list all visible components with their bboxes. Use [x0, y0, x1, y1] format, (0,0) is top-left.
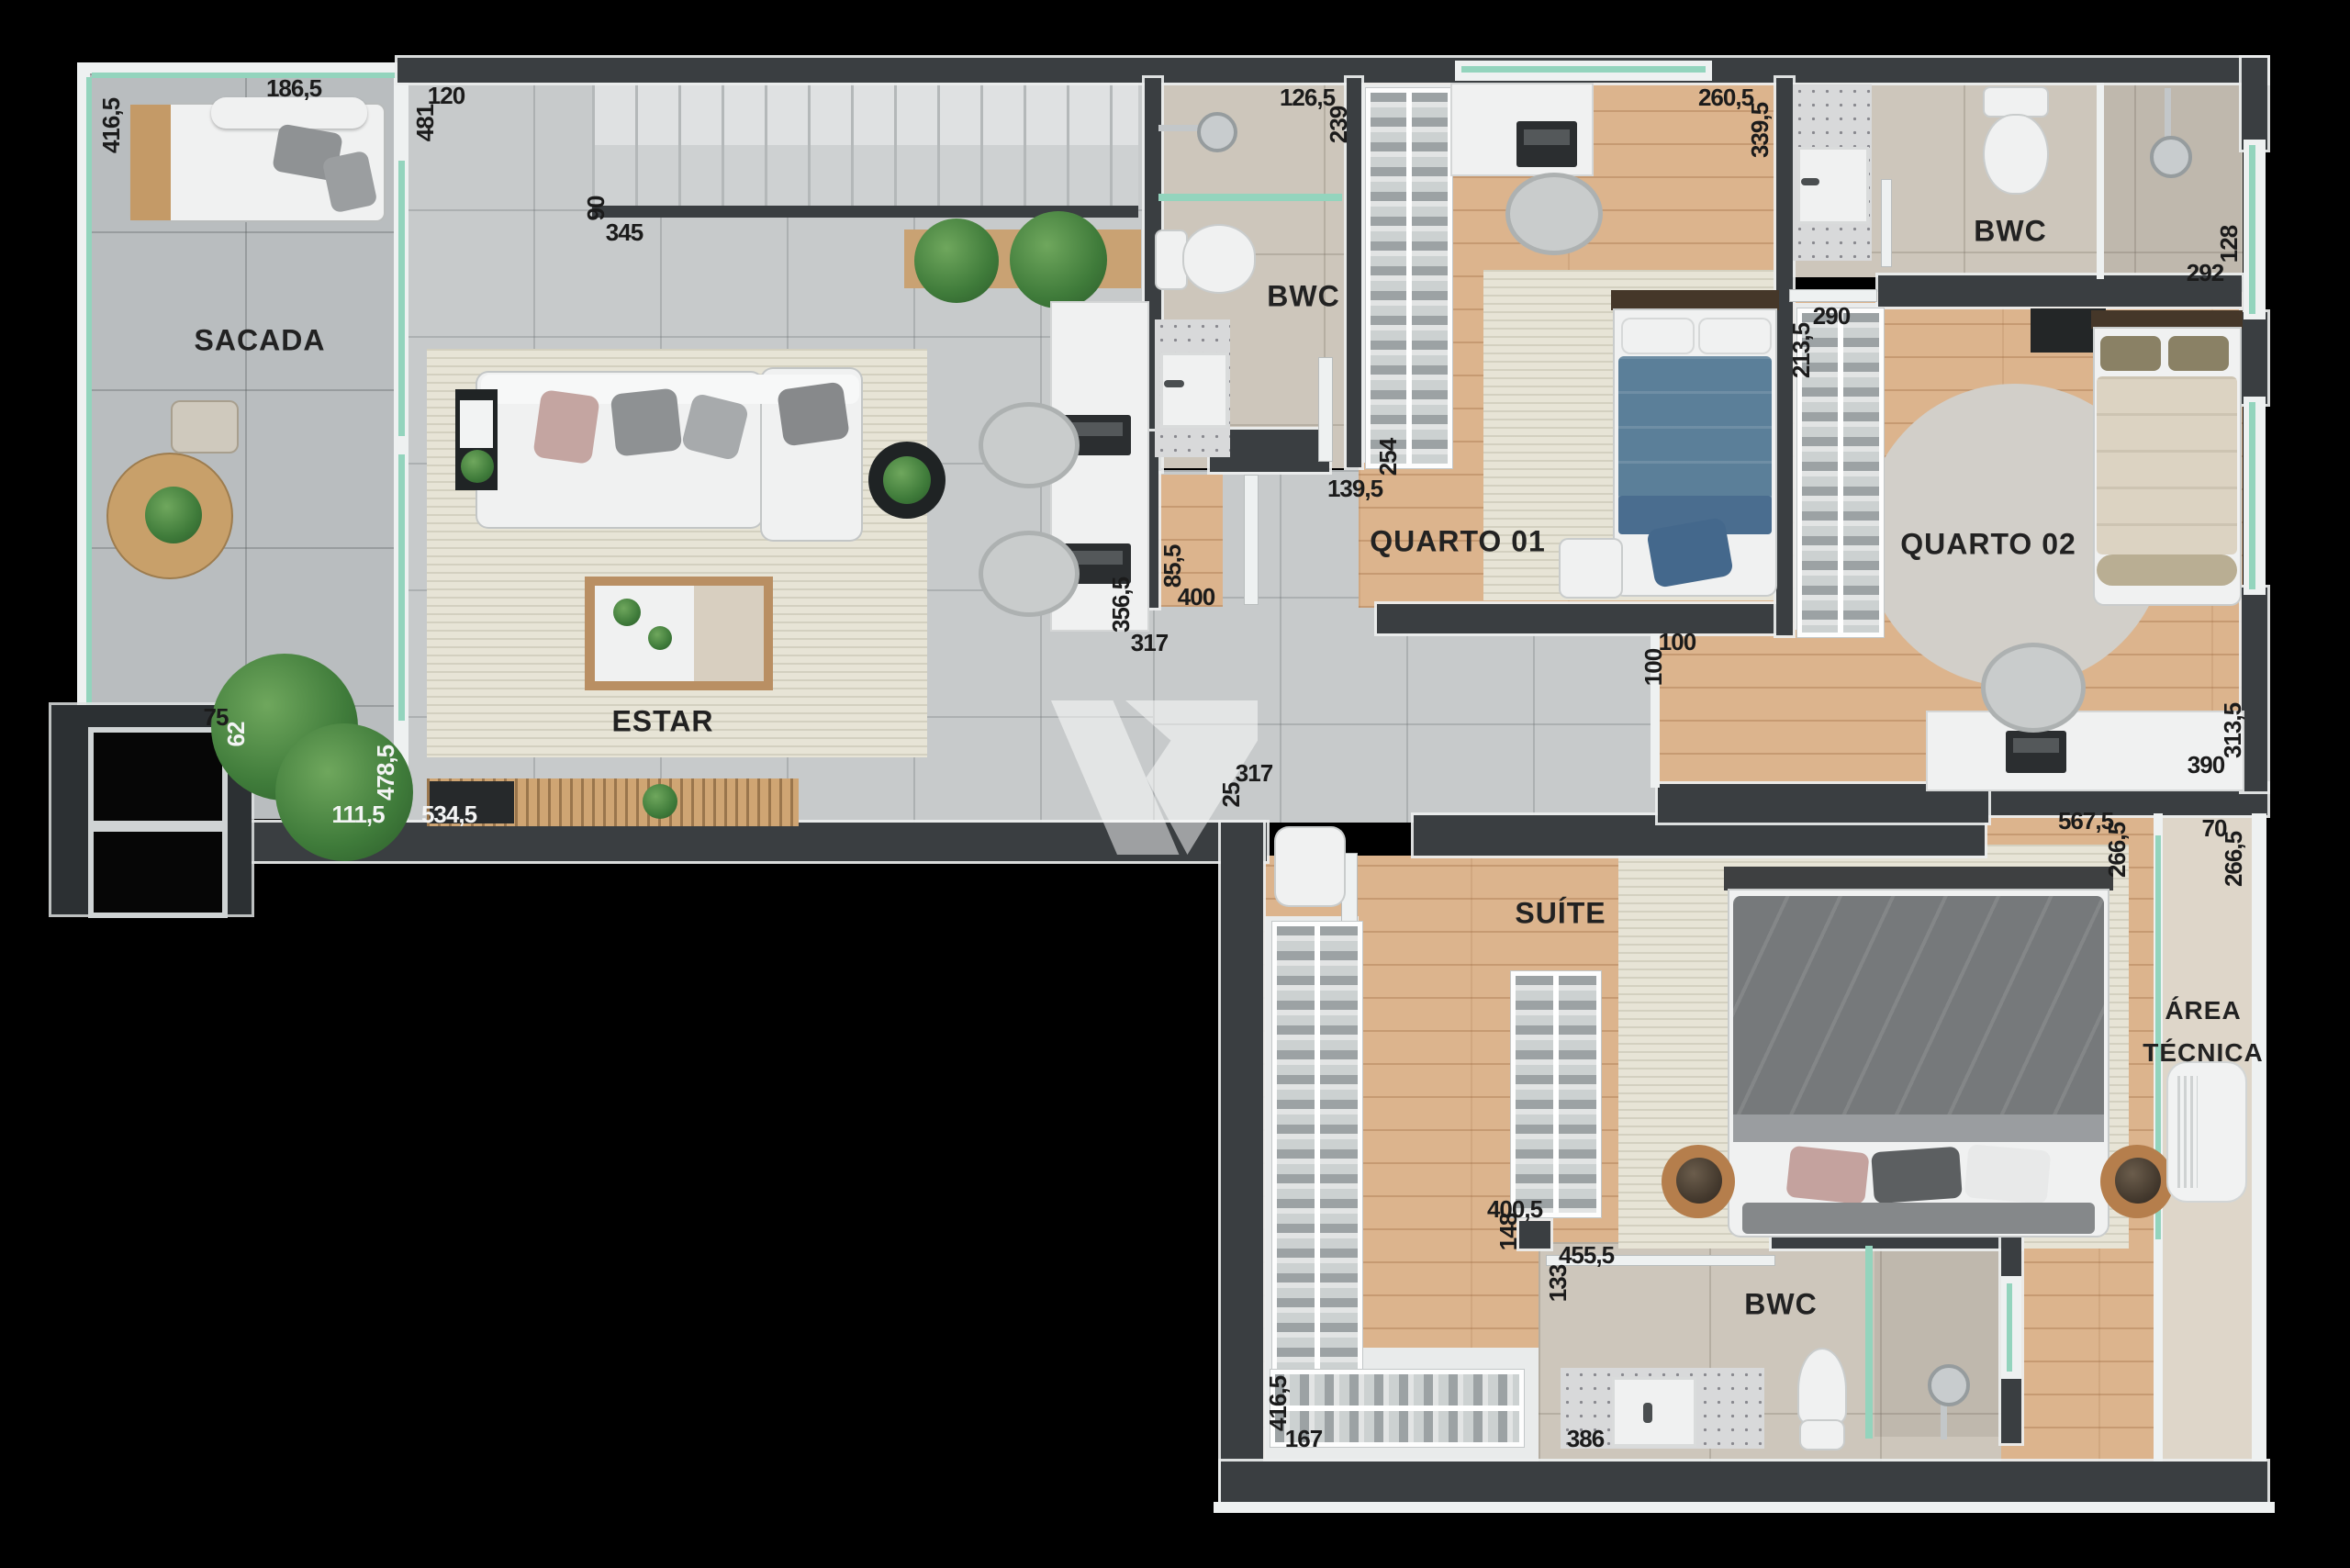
bwc2-sink — [1797, 147, 1869, 224]
suite-bench — [1742, 1203, 2095, 1234]
wall-bottom — [1221, 1462, 2267, 1502]
dim-label: 317 — [1131, 631, 1168, 655]
dim-label: 239 — [1326, 106, 1350, 143]
estar-round-table-plant — [883, 456, 931, 504]
room-label-area-tecnica-1: ÁREA — [2165, 996, 2241, 1025]
bwc1-sink — [1160, 353, 1228, 428]
bwc2-toilet-tank — [1985, 88, 2047, 116]
dim-label: 317 — [1236, 761, 1272, 785]
suite-closet-rack-center — [1511, 971, 1601, 1217]
estar-pillow-chaise — [777, 381, 850, 446]
dim-label: 478,5 — [374, 745, 397, 801]
quarto1-laptop — [1516, 121, 1577, 167]
wall-quarto2-suite — [1658, 784, 1988, 823]
stairs — [592, 83, 1138, 207]
quarto2-chair — [1981, 643, 2086, 733]
dim-label: 313,5 — [2221, 703, 2244, 758]
suite-closet-rail-left — [1315, 926, 1320, 1396]
dim-label: 416,5 — [1266, 1376, 1290, 1431]
room-label-estar: ESTAR — [611, 705, 713, 739]
quarto2-pillow-2 — [2168, 336, 2229, 371]
estar-sacada-glass-upper — [398, 161, 405, 436]
suite-closet-rail-center — [1553, 976, 1559, 1213]
dim-label: 266,5 — [2105, 823, 2129, 878]
quarto2-duvet — [2097, 376, 2237, 554]
bwc3-shower-floor — [1874, 1242, 2001, 1437]
estar-console-plant — [643, 784, 677, 819]
quarto2-laptop — [2006, 731, 2066, 773]
bwc3-shower-head — [1928, 1364, 1970, 1406]
dim-label: 345 — [606, 220, 643, 244]
dim-label: 481 — [413, 105, 437, 141]
suite-bed-headboard — [1724, 867, 2113, 890]
bwc3-window-glass — [2007, 1283, 2012, 1372]
quarto2-bed-headboard — [2091, 310, 2243, 329]
shaft-box-2 — [88, 826, 228, 918]
dim-label: 133 — [1546, 1265, 1570, 1302]
estar-pillow-pink — [532, 389, 600, 465]
sacada-table-plant — [145, 487, 202, 543]
bwc3-sink — [1612, 1377, 1696, 1447]
bwc2-faucet-icon — [1801, 178, 1819, 185]
room-label-quarto2: QUARTO 02 — [1900, 528, 2076, 562]
estar-desk-chair-2 — [979, 531, 1080, 617]
dim-label: 534,5 — [421, 802, 476, 826]
dim-label: 148 — [1496, 1214, 1520, 1250]
bwc2-shower-divider — [2097, 83, 2104, 279]
wall-top — [397, 58, 2267, 83]
bwc3-shower-glass — [1865, 1246, 1873, 1439]
quarto1-bed-headboard — [1611, 290, 1779, 310]
dim-label: 416,5 — [99, 98, 123, 153]
suite-nightstand-left-plant — [1676, 1158, 1722, 1204]
estar-coffee-bowl-2 — [648, 626, 672, 650]
dim-label: 25 — [1219, 783, 1243, 808]
estar-plant-2 — [1010, 211, 1107, 308]
bwc1-shower-head — [1197, 112, 1237, 152]
room-label-quarto1: QUARTO 01 — [1370, 525, 1546, 559]
quarto1-closet-rack — [1366, 88, 1452, 468]
dim-label: 128 — [2217, 226, 2241, 263]
estar-sacada-glass-lower — [398, 454, 405, 721]
bwc3-toilet-bowl — [1799, 1350, 1845, 1423]
room-label-bwc2: BWC — [1974, 215, 2046, 249]
watermark-logo — [1051, 700, 1258, 855]
quarto2-closet-rail — [1838, 313, 1843, 633]
dim-label: 90 — [584, 196, 608, 221]
estar-plant-1 — [914, 218, 999, 303]
room-label-bwc3: BWC — [1744, 1288, 1817, 1322]
wall-right-b — [2242, 312, 2267, 404]
sacada-chair — [173, 402, 237, 452]
wall-right-a — [2242, 58, 2267, 150]
right-window2-glass — [2249, 402, 2255, 589]
estar-coffee-bowl-1 — [613, 599, 641, 626]
quarto2-entry-floor — [1658, 633, 1796, 788]
room-label-suite: SUÍTE — [1515, 897, 1606, 931]
sacada-daybed-table — [130, 105, 171, 220]
suite-sheet-fold — [1733, 1114, 2104, 1142]
dim-label: 356,5 — [1109, 577, 1133, 633]
dim-label: 455,5 — [1559, 1243, 1614, 1267]
bwc2-door — [1882, 180, 1891, 266]
bwc1-shower-glass — [1158, 194, 1342, 201]
bwc2-shower-arm-icon — [2165, 88, 2171, 141]
dim-label: 386 — [1567, 1427, 1604, 1450]
bwc1-toilet-tank — [1157, 231, 1186, 288]
suite-closet-rail-bottom — [1275, 1406, 1519, 1411]
wall-quarto1-bottom — [1377, 604, 1784, 633]
estar-coffee-table-wood-top — [694, 586, 764, 681]
dim-label: 400 — [1178, 585, 1214, 609]
estar-coffee-table-marble — [595, 586, 694, 681]
quarto2-door — [1790, 290, 1876, 301]
suite-nightstand-right-plant — [2115, 1158, 2161, 1204]
dim-label: 186,5 — [266, 76, 321, 100]
quarto1-chair — [1505, 173, 1603, 255]
suite-foot-pillow-white — [1964, 1144, 2052, 1204]
wall-suite-bwc3-a — [1519, 1221, 1550, 1249]
room-label-area-tecnica-2: TÉCNICA — [2143, 1038, 2263, 1068]
suite-closet-rack-left — [1272, 922, 1362, 1401]
quarto2-blanket-roll — [2097, 554, 2237, 586]
dim-label: 139,5 — [1327, 476, 1382, 500]
dim-label: 390 — [2188, 753, 2224, 777]
quarto1-door — [1245, 476, 1258, 604]
room-label-bwc1: BWC — [1267, 280, 1339, 314]
dim-label: 292 — [2187, 261, 2223, 285]
wall-right-c — [2242, 588, 2267, 791]
quarto1-pillow-1 — [1623, 319, 1693, 353]
ac-vent-lines — [2177, 1076, 2198, 1188]
suite-duvet — [1733, 896, 2104, 1131]
bottom-outer-trim — [1214, 1502, 2275, 1513]
dim-label: 100 — [1641, 649, 1665, 686]
estar-side-table-plant — [461, 450, 494, 483]
estar-side-table-card — [460, 400, 493, 448]
bwc2-shower-head — [2150, 136, 2192, 178]
sacada-left-glass — [86, 77, 92, 812]
dim-label: 290 — [1813, 304, 1850, 328]
bwc3-faucet-icon — [1643, 1403, 1652, 1423]
dim-label: 213,5 — [1789, 323, 1813, 378]
quarto1-pillow-2 — [1700, 319, 1770, 353]
quarto1-window-glass — [1461, 66, 1706, 73]
room-label-sacada: SACADA — [195, 324, 326, 358]
quarto1-nightstand — [1561, 540, 1621, 597]
dim-label: 167 — [1285, 1427, 1322, 1450]
quarto1-closet-rail — [1406, 93, 1412, 464]
sacada-daybed-backrest — [211, 97, 367, 129]
dim-label: 85,5 — [1160, 545, 1184, 588]
estar-desk-chair-1 — [979, 402, 1080, 488]
bwc1-toilet-bowl — [1184, 226, 1254, 292]
quarto2-pillow-1 — [2100, 336, 2161, 371]
suite-foot-pillow-dark — [1871, 1147, 1963, 1204]
area-tecnica-right-frame — [2252, 813, 2266, 1462]
floor-plan: SACADA ESTAR BWC QUARTO 01 BWC QUARTO 02… — [0, 0, 2350, 1568]
suite-foot-pillow-pink — [1785, 1146, 1869, 1205]
right-window1-glass — [2249, 145, 2255, 314]
dim-label: 266,5 — [2221, 832, 2245, 887]
dim-label: 62 — [224, 722, 248, 747]
bwc2-toilet-bowl — [1985, 116, 2047, 193]
wall-suite-left — [1221, 823, 1263, 1502]
suite-laundry-basket — [1276, 828, 1344, 905]
dim-label: 254 — [1376, 439, 1400, 476]
estar-pillow-gray — [610, 387, 683, 456]
bwc3-toilet-tank — [1801, 1421, 1843, 1449]
dim-label: 111,5 — [331, 802, 384, 826]
bwc1-door — [1319, 358, 1332, 461]
sacada-top-glass — [92, 73, 399, 78]
shaft-box-1 — [88, 727, 228, 826]
dim-label: 339,5 — [1748, 103, 1772, 158]
bwc1-faucet-icon — [1164, 380, 1184, 387]
